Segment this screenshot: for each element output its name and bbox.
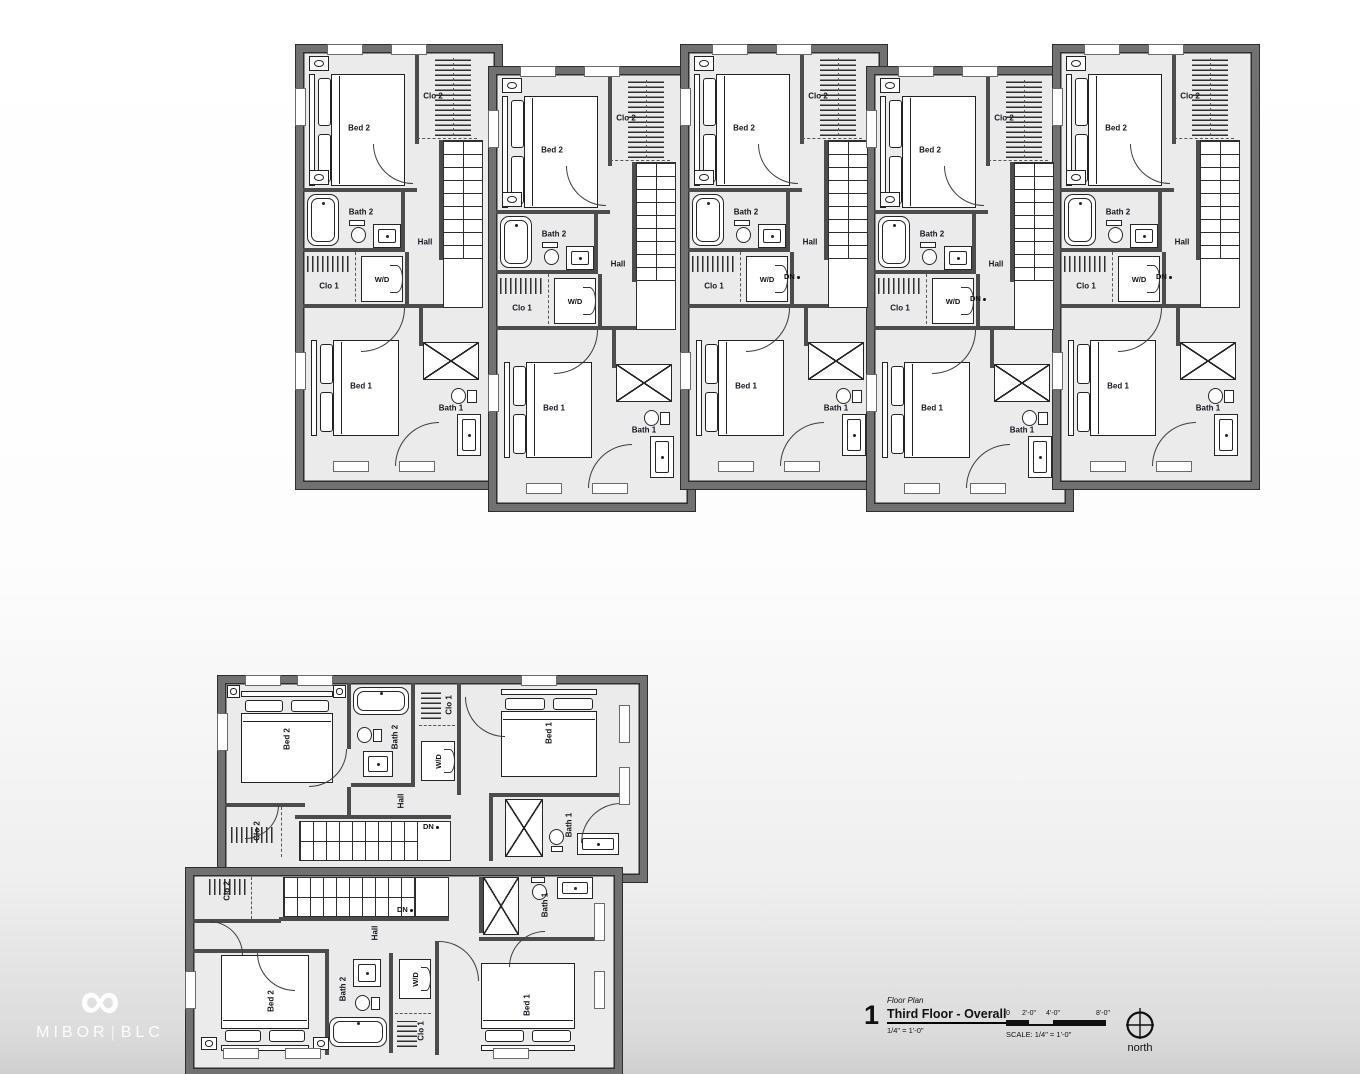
- toilet-tank: [542, 242, 558, 248]
- closet-rod-icon: [878, 278, 922, 294]
- toilet-tank: [1106, 220, 1122, 226]
- nightstand-icon: [1066, 170, 1086, 185]
- washer-dryer-label: W/D: [375, 275, 390, 284]
- pillow: [225, 1030, 261, 1042]
- window: [594, 903, 605, 941]
- window: [784, 461, 820, 472]
- toilet-bowl: [922, 249, 937, 265]
- stairs: [299, 821, 419, 861]
- watermark: ∞ MIBOR|BLC: [10, 978, 190, 1042]
- nightstand-icon: [333, 685, 346, 698]
- infinity-logo-icon: ∞: [10, 978, 190, 1022]
- pillow: [513, 366, 526, 406]
- dashed-line: [1112, 252, 1113, 302]
- pillow: [505, 698, 545, 710]
- scale-bar-ticks: 0 2'-0" 4'-0" 8'-0": [1006, 1010, 1106, 1019]
- sink-icon: [758, 224, 786, 248]
- toilet-bowl: [736, 227, 751, 243]
- headboard: [501, 689, 597, 695]
- toilet-tank: [371, 997, 380, 1010]
- room-label-bed2: Bed 2: [1105, 124, 1127, 133]
- unit-1: W/DBed 2Clo 2Bath 2HallClo 1Bed 1Bath 1: [296, 45, 502, 489]
- room-label-bath1: Bath 1: [541, 893, 550, 917]
- toilet-tank: [734, 220, 750, 226]
- shower-icon: [1180, 342, 1236, 380]
- room-label-bed1: Bed 1: [350, 382, 372, 391]
- door-arc: [209, 921, 243, 955]
- door-arc: [395, 422, 439, 466]
- closet-rod-icon: [692, 256, 736, 272]
- nightstand-icon: [502, 192, 522, 207]
- wall: [279, 917, 449, 921]
- dashed-line: [838, 58, 839, 136]
- pillow: [485, 1030, 524, 1042]
- door-arc: [1152, 422, 1196, 466]
- north-compass-icon: [1122, 1006, 1158, 1042]
- washer-dryer-label: W/D: [411, 972, 420, 987]
- wall: [598, 274, 602, 326]
- room-label-bed1: Bed 1: [735, 382, 757, 391]
- drawing-category: Floor Plan: [887, 996, 1006, 1005]
- wall: [415, 52, 419, 144]
- wall: [193, 919, 281, 923]
- bed-fold-line: [483, 1020, 573, 1021]
- headboard: [241, 691, 333, 697]
- scale-bar-segment: [1006, 1020, 1029, 1026]
- wall: [303, 188, 417, 192]
- room-label-bath1: Bath 1: [632, 426, 656, 435]
- stair-landing: [1014, 280, 1054, 330]
- door-arc: [966, 444, 1010, 488]
- scale-bar: 0 2'-0" 4'-0" 8'-0" SCALE: 1/4" = 1'-0": [1006, 1010, 1106, 1044]
- drawing-scale: 1/4" = 1'-0": [887, 1026, 1006, 1035]
- tub-icon: [500, 216, 532, 268]
- washer-dryer-box: W/D: [399, 959, 431, 999]
- wall: [295, 815, 451, 819]
- window: [185, 971, 196, 1009]
- stair-landing: [828, 258, 868, 308]
- window: [488, 374, 499, 412]
- toilet-tank: [660, 412, 670, 425]
- window: [712, 44, 748, 55]
- bed-fold-line: [503, 719, 595, 720]
- stair-landing: [443, 258, 483, 308]
- window: [584, 66, 620, 77]
- headboard: [1068, 340, 1074, 436]
- sink-icon: [650, 436, 674, 478]
- room-label-clo2: Clo 2: [253, 821, 262, 841]
- window: [526, 483, 562, 494]
- room-label-clo1: Clo 1: [445, 695, 454, 715]
- wall: [986, 74, 990, 166]
- wall: [457, 683, 461, 795]
- window: [488, 110, 499, 148]
- washer-dryer-label: W/D: [946, 297, 961, 306]
- shower-icon: [483, 877, 519, 935]
- tub-icon: [329, 1017, 387, 1047]
- toilet-tank: [920, 242, 936, 248]
- watermark-text: MIBOR|BLC: [10, 1024, 190, 1042]
- washer-dryer-label: W/D: [568, 297, 583, 306]
- room-label-clo2: Clo 2: [616, 114, 636, 123]
- scale-tick-2: 4'-0": [1046, 1010, 1060, 1017]
- pillow: [703, 78, 716, 126]
- pillow: [532, 1030, 571, 1042]
- nightstand-icon: [694, 56, 714, 71]
- room-label-bed2: Bed 2: [348, 124, 370, 133]
- door-arc: [465, 697, 505, 737]
- stairs: [1014, 162, 1054, 282]
- room-label-bed1: Bed 1: [921, 404, 943, 413]
- wall: [496, 210, 610, 214]
- room-label-hall: Hall: [611, 260, 626, 269]
- washer-dryer-box: W/D: [746, 256, 788, 302]
- door-arc: [439, 941, 479, 981]
- unit-4: W/DBed 2Clo 2Bath 2HallClo 1Bed 1Bath 1D…: [867, 67, 1073, 511]
- bed-frame: [501, 711, 597, 777]
- room-label-bath2: Bath 2: [391, 725, 400, 749]
- wall: [303, 248, 405, 252]
- toilet-bowl: [1208, 388, 1223, 404]
- pillow: [513, 414, 526, 454]
- stairs: [636, 162, 676, 282]
- room-label-bath1: Bath 1: [565, 813, 574, 837]
- window: [295, 352, 306, 390]
- window: [898, 66, 934, 77]
- window: [866, 374, 877, 412]
- door-arc: [780, 422, 824, 466]
- room-label-bath1: Bath 1: [1010, 426, 1034, 435]
- sink-icon: [363, 751, 393, 777]
- sink-icon: [353, 959, 381, 987]
- wall: [419, 308, 423, 346]
- bed-fold-line: [243, 721, 331, 722]
- pillow: [891, 366, 904, 406]
- room-label-clo2: Clo 2: [994, 114, 1014, 123]
- pillow: [269, 1030, 305, 1042]
- wall: [874, 210, 988, 214]
- nightstand-icon: [880, 192, 900, 207]
- sink-icon: [457, 414, 481, 456]
- room-label-hall: Hall: [397, 794, 406, 809]
- dashed-line: [1024, 80, 1025, 158]
- window: [904, 483, 940, 494]
- watermark-text-left: MIBOR: [36, 1024, 108, 1041]
- wall: [489, 793, 626, 797]
- room-label-clo1: Clo 1: [1076, 282, 1096, 291]
- washer-dryer-box: W/D: [361, 256, 403, 302]
- closet-rod-icon: [421, 691, 441, 719]
- window: [391, 44, 427, 55]
- tub-icon: [692, 194, 724, 246]
- shower-icon: [423, 342, 479, 380]
- wall: [1158, 192, 1162, 250]
- headboard: [311, 340, 317, 436]
- wall: [608, 74, 612, 166]
- sink-icon: [373, 224, 401, 248]
- washer-dryer-box: W/D: [1118, 256, 1160, 302]
- window: [776, 44, 812, 55]
- window: [718, 461, 754, 472]
- window: [399, 461, 435, 472]
- north-label: north: [1120, 1042, 1160, 1054]
- window: [1148, 44, 1184, 55]
- closet-rod-icon: [1064, 256, 1108, 272]
- shower-icon: [808, 342, 864, 380]
- window: [493, 1048, 529, 1059]
- room-label-bed1: Bed 1: [543, 404, 565, 413]
- toilet-bowl: [544, 249, 559, 265]
- tub-icon: [1064, 194, 1096, 246]
- dashed-line: [453, 58, 454, 136]
- wall: [786, 192, 790, 250]
- room-label-clo1: Clo 1: [704, 282, 724, 291]
- down-label: DN: [784, 272, 800, 281]
- room-label-bed2: Bed 2: [283, 728, 292, 750]
- dashed-line: [355, 252, 356, 302]
- wall: [496, 270, 598, 274]
- tub-icon: [307, 194, 339, 246]
- closet-rod-icon: [307, 256, 351, 272]
- room-label-bath2: Bath 2: [734, 208, 758, 217]
- sheet-number: 1: [864, 1000, 879, 1031]
- window: [1052, 88, 1063, 126]
- pillow: [511, 100, 524, 148]
- down-label: DN: [970, 294, 986, 303]
- washer-dryer-label: W/D: [1132, 275, 1147, 284]
- room-label-clo2: Clo 2: [1180, 92, 1200, 101]
- shower-icon: [994, 364, 1050, 402]
- dashed-line: [417, 138, 477, 139]
- toilet-tank: [531, 877, 545, 883]
- dashed-line: [926, 274, 927, 324]
- wall: [594, 214, 598, 272]
- dashed-line: [419, 725, 455, 726]
- shower-icon: [616, 364, 672, 402]
- room-label-bed1: Bed 1: [523, 994, 532, 1016]
- unit-5: W/DBed 2Clo 2Bath 2HallClo 1Bed 1Bath 1D…: [1053, 45, 1259, 489]
- stairs: [1200, 140, 1240, 260]
- window: [970, 483, 1006, 494]
- unit-2: W/DBed 2Clo 2Bath 2HallClo 1Bed 1Bath 1: [489, 67, 695, 511]
- dashed-line: [740, 252, 741, 302]
- bed-fold-line: [534, 364, 535, 456]
- nightstand-icon: [201, 1037, 217, 1050]
- wall: [351, 783, 413, 787]
- washer-dryer-box: W/D: [554, 278, 596, 324]
- nightstand-icon: [309, 170, 329, 185]
- tub-icon: [878, 216, 910, 268]
- washer-dryer-label: W/D: [760, 275, 775, 284]
- pillow: [320, 392, 333, 432]
- dashed-line: [395, 1013, 431, 1014]
- wall: [800, 52, 804, 144]
- toilet-bowl: [1022, 410, 1037, 426]
- dashed-line: [610, 160, 670, 161]
- room-label-bath2: Bath 2: [920, 230, 944, 239]
- bed-fold-line: [223, 1020, 307, 1021]
- window: [619, 767, 630, 805]
- window: [333, 461, 369, 472]
- sink-icon: [1130, 224, 1158, 248]
- nightstand-icon: [227, 685, 240, 698]
- watermark-text-right: BLC: [121, 1024, 164, 1041]
- title-block: Floor Plan Third Floor - Overall 1/4" = …: [887, 996, 1006, 1035]
- room-label-bed2: Bed 2: [733, 124, 755, 133]
- toilet-tank: [551, 846, 563, 852]
- down-label: DN: [397, 905, 413, 914]
- wall: [972, 214, 976, 272]
- pillow: [891, 414, 904, 454]
- pillow: [245, 700, 283, 712]
- room-label-hall: Hall: [371, 926, 380, 941]
- floor-plan-sheet: ∞ MIBOR|BLC W/DBed 2Clo 2Bath 2HallClo 1…: [0, 0, 1360, 1074]
- wall: [874, 270, 976, 274]
- bed-fold-line: [726, 342, 727, 434]
- toilet-bowl: [355, 995, 370, 1011]
- scale-tick-1: 2'-0": [1022, 1010, 1036, 1017]
- bed-fold-line: [724, 76, 725, 184]
- north-arrow: north: [1120, 1006, 1160, 1054]
- sink-icon: [944, 246, 972, 270]
- window: [1084, 44, 1120, 55]
- window: [1052, 352, 1063, 390]
- headboard: [882, 362, 888, 458]
- window: [619, 705, 630, 743]
- wall: [405, 252, 409, 304]
- room-label-bed2: Bed 2: [919, 146, 941, 155]
- pillow: [320, 344, 333, 384]
- wall: [1060, 248, 1162, 252]
- dashed-line: [646, 80, 647, 158]
- window: [285, 1048, 321, 1059]
- wall: [1060, 188, 1174, 192]
- room-label-clo2: Clo 2: [808, 92, 828, 101]
- bed-fold-line: [1098, 342, 1099, 434]
- window: [520, 66, 556, 77]
- closet-rod-icon: [500, 278, 544, 294]
- stair-landing: [1200, 258, 1240, 308]
- bed-fold-line: [910, 98, 911, 206]
- bed-fold-line: [912, 364, 913, 456]
- room-label-clo1: Clo 1: [512, 304, 532, 313]
- door-arc: [309, 749, 347, 787]
- toilet-bowl: [644, 410, 659, 426]
- wall: [688, 188, 802, 192]
- stairs: [443, 140, 483, 260]
- room-label-clo2: Clo 2: [223, 881, 232, 901]
- stair-landing: [636, 280, 676, 330]
- nightstand-icon: [694, 170, 714, 185]
- door-arc: [581, 803, 621, 843]
- shower-icon: [505, 799, 543, 857]
- down-label: DN: [1156, 272, 1172, 281]
- window: [327, 44, 363, 55]
- sink-icon: [842, 414, 866, 456]
- window: [962, 66, 998, 77]
- sink-icon: [566, 246, 594, 270]
- room-label-bath2: Bath 2: [349, 208, 373, 217]
- window: [521, 675, 557, 686]
- window: [1090, 461, 1126, 472]
- scale-bar-segment: [1029, 1024, 1053, 1027]
- room-label-bed1: Bed 1: [545, 722, 554, 744]
- scale-tick-3: 8'-0": [1096, 1010, 1110, 1017]
- washer-dryer-box: W/D: [932, 278, 974, 324]
- washer-dryer-box: W/D: [421, 741, 455, 781]
- nightstand-icon: [502, 78, 522, 93]
- pillow: [1077, 392, 1090, 432]
- room-label-bath1: Bath 1: [1196, 404, 1220, 413]
- dashed-line: [251, 877, 252, 919]
- door-arc: [588, 444, 632, 488]
- window: [217, 713, 228, 751]
- wall: [489, 797, 493, 861]
- tub-icon: [353, 687, 409, 715]
- wall: [688, 248, 790, 252]
- room-label-bath2: Bath 2: [542, 230, 566, 239]
- wall: [347, 787, 351, 817]
- wall: [804, 308, 808, 346]
- window: [1156, 461, 1192, 472]
- room-label-bath1: Bath 1: [824, 404, 848, 413]
- dashed-line: [548, 274, 549, 324]
- room-label-bed2: Bed 2: [541, 146, 563, 155]
- scale-bar-segment: [1053, 1020, 1106, 1026]
- scale-bar-graphic: [1006, 1020, 1106, 1026]
- sink-icon: [1028, 436, 1052, 478]
- unit-6: W/DBed 2Bath 2HallClo 2Clo 1Bed 1Bath 1D…: [218, 676, 647, 882]
- sink-icon: [1214, 414, 1238, 456]
- window: [866, 110, 877, 148]
- scale-caption: SCALE: 1/4" = 1'-0": [1006, 1030, 1106, 1039]
- dashed-line: [802, 138, 862, 139]
- toilet-tank: [1224, 390, 1234, 403]
- wall: [612, 330, 616, 368]
- pillow: [705, 392, 718, 432]
- wall: [401, 192, 405, 250]
- room-label-bath2: Bath 2: [1106, 208, 1130, 217]
- toilet-tank: [467, 390, 477, 403]
- stair-landing: [415, 877, 449, 917]
- toilet-bowl: [451, 388, 466, 404]
- watermark-divider: |: [109, 1024, 121, 1041]
- toilet-tank: [373, 729, 382, 742]
- room-label-clo1: Clo 1: [319, 282, 339, 291]
- window: [295, 88, 306, 126]
- down-label: DN: [423, 822, 439, 831]
- dashed-line: [281, 807, 282, 857]
- toilet-tank: [1038, 412, 1048, 425]
- pillow: [291, 700, 329, 712]
- toilet-tank: [852, 390, 862, 403]
- dashed-line: [988, 160, 1048, 161]
- room-label-hall: Hall: [1175, 238, 1190, 247]
- window: [245, 675, 281, 686]
- bed-fold-line: [532, 98, 533, 206]
- window: [680, 88, 691, 126]
- headboard: [504, 362, 510, 458]
- unit-7: W/DClo 2HallBed 2Bath 2Clo 1Bed 1Bath 1D…: [186, 868, 622, 1074]
- room-label-bath2: Bath 2: [339, 977, 348, 1001]
- stairs: [828, 140, 868, 260]
- room-label-bed2: Bed 2: [267, 990, 276, 1012]
- window: [297, 675, 333, 686]
- dashed-line: [1210, 58, 1211, 136]
- headboard: [696, 340, 702, 436]
- sink-icon: [557, 877, 593, 899]
- room-label-hall: Hall: [989, 260, 1004, 269]
